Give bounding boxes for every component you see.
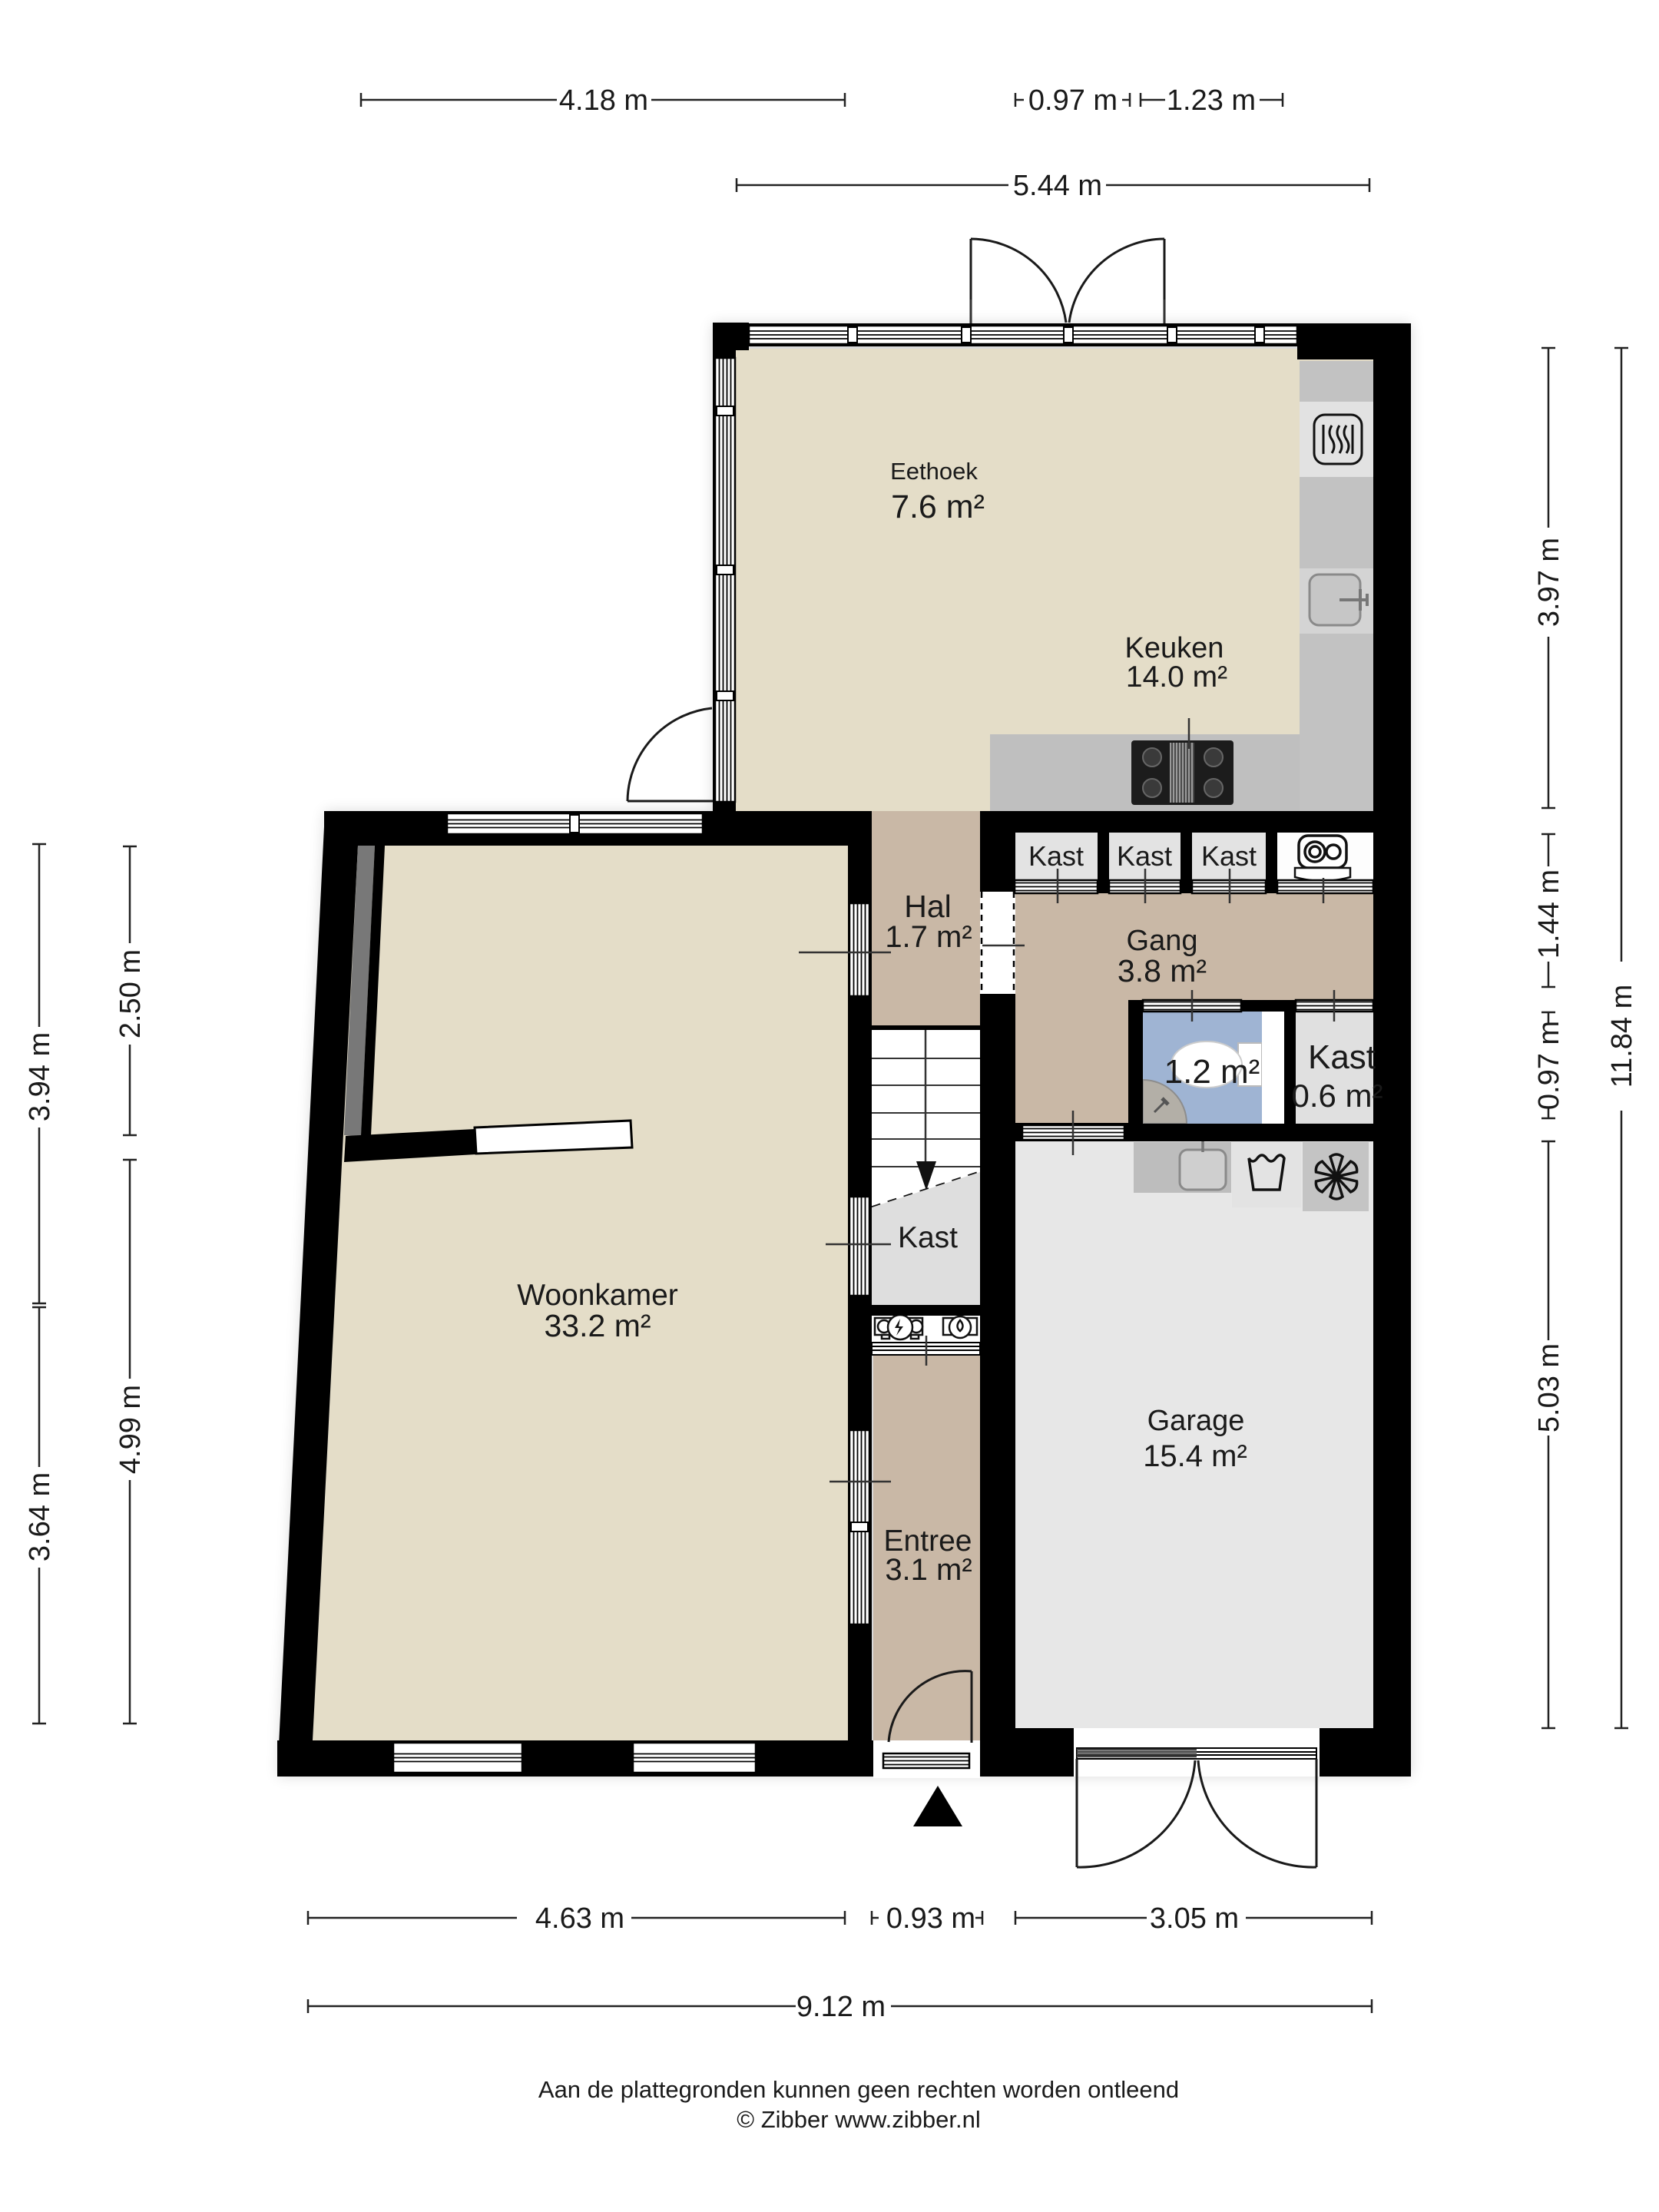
svg-text:4.63 m: 4.63 m [535,1902,624,1935]
svg-text:5.03 m: 5.03 m [1533,1343,1565,1432]
svg-text:3.64 m: 3.64 m [24,1472,56,1561]
svg-text:Keuken: Keuken [1125,632,1224,664]
svg-text:3.1 m²: 3.1 m² [885,1553,972,1587]
svg-text:© Zibber www.zibber.nl: © Zibber www.zibber.nl [737,2106,980,2133]
svg-text:Gang: Gang [1127,925,1198,957]
svg-text:3.94 m: 3.94 m [24,1032,56,1121]
svg-text:Kast: Kast [1201,840,1257,872]
svg-text:7.6 m²: 7.6 m² [891,488,985,525]
svg-text:Kast: Kast [1117,840,1172,872]
svg-text:15.4 m²: 15.4 m² [1143,1439,1247,1473]
svg-text:5.44 m: 5.44 m [1013,170,1102,202]
svg-text:33.2 m²: 33.2 m² [545,1308,651,1343]
svg-text:1.44 m: 1.44 m [1533,869,1565,959]
svg-text:14.0 m²: 14.0 m² [1126,661,1227,694]
svg-text:11.84 m: 11.84 m [1606,985,1638,1088]
svg-text:Kast: Kast [1308,1038,1376,1076]
svg-text:1.23 m: 1.23 m [1167,84,1256,117]
svg-text:0.97 m: 0.97 m [1533,1021,1565,1110]
svg-text:9.12 m: 9.12 m [796,1991,886,2023]
svg-text:Woonkamer: Woonkamer [517,1279,678,1312]
svg-text:Hal: Hal [904,889,952,924]
svg-text:1.2 m²: 1.2 m² [1164,1053,1260,1091]
svg-text:4.99 m: 4.99 m [114,1385,147,1474]
svg-text:0.93 m: 0.93 m [886,1902,975,1935]
svg-text:2.50 m: 2.50 m [114,949,147,1038]
svg-text:3.97 m: 3.97 m [1533,538,1565,627]
svg-text:3.8 m²: 3.8 m² [1118,953,1207,988]
svg-text:Garage: Garage [1147,1405,1245,1437]
svg-text:Kast: Kast [1028,840,1084,872]
svg-text:3.05 m: 3.05 m [1150,1902,1239,1935]
svg-text:1.7 m²: 1.7 m² [885,920,972,954]
svg-text:4.18 m: 4.18 m [559,84,648,117]
svg-text:Kast: Kast [898,1221,958,1254]
svg-text:Eethoek: Eethoek [890,458,978,485]
svg-text:0.6 m²: 0.6 m² [1291,1078,1382,1114]
svg-text:0.97 m: 0.97 m [1028,84,1118,117]
svg-text:Aan de plattegronden kunnen ge: Aan de plattegronden kunnen geen rechten… [538,2076,1179,2103]
